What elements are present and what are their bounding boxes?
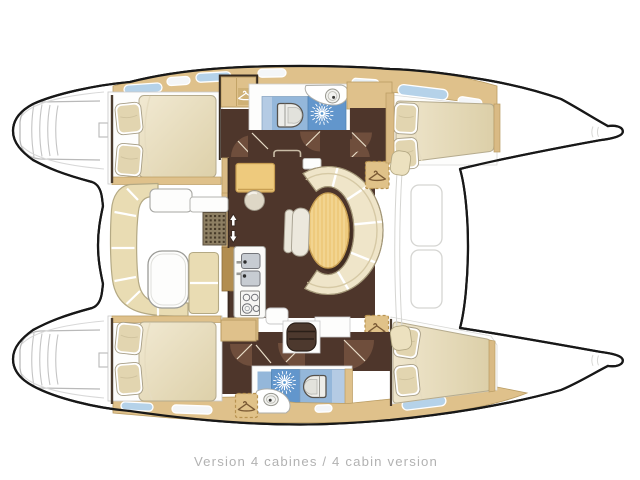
svg-text:Version 4 cabines / 4 cabin ve: Version 4 cabines / 4 cabin version bbox=[194, 454, 438, 469]
